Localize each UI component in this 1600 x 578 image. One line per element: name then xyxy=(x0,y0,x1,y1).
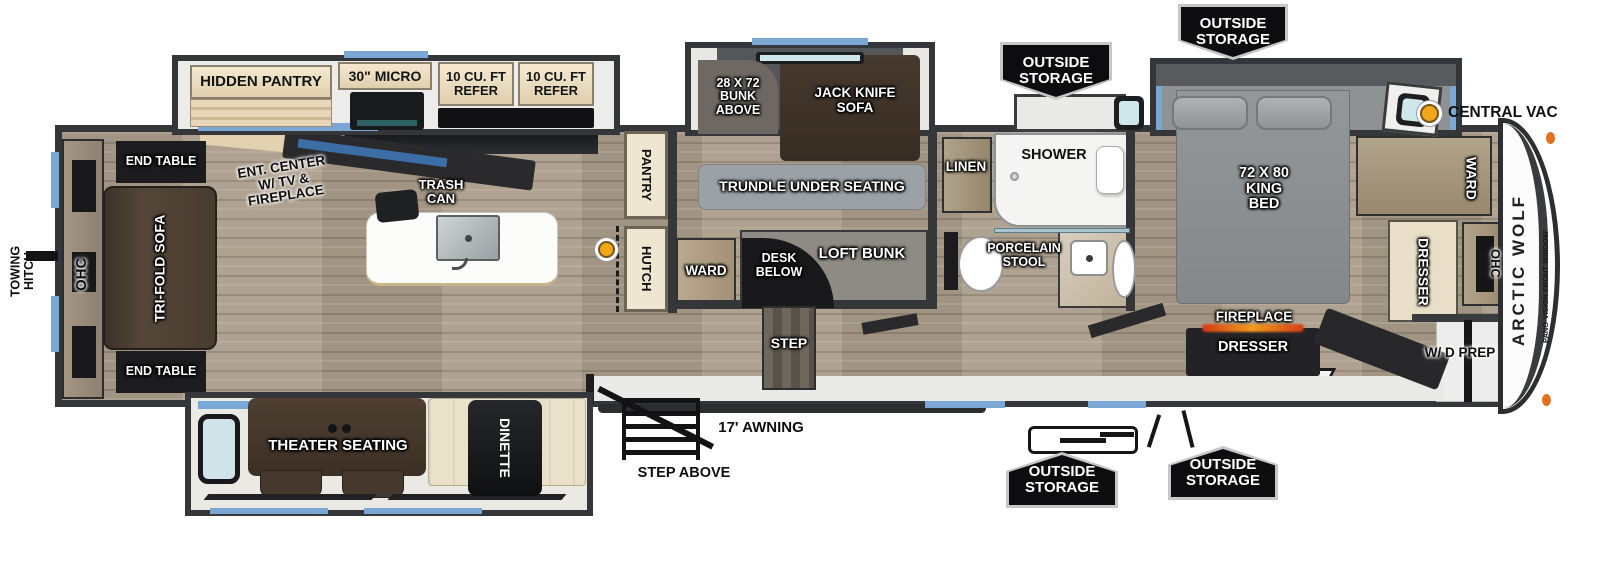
rear-cabinet-insert xyxy=(72,160,96,212)
pillow xyxy=(1256,96,1332,130)
outside-storage-label: OUTSIDE STORAGE xyxy=(1186,457,1260,490)
towing-hitch-label: TOWING HITCH xyxy=(4,226,42,316)
pantry-cabinet: PANTRY xyxy=(624,131,668,219)
outside-storage-badge: OUTSIDE STORAGE xyxy=(1168,446,1278,500)
trundle-label: TRUNDLE UNDER SEATING xyxy=(719,179,905,194)
exterior-storage-wedge xyxy=(1014,94,1126,132)
pillow xyxy=(1172,96,1248,130)
brand-logo: ARCTIC WOLF xyxy=(1506,172,1532,368)
end-table-label: END TABLE xyxy=(126,155,197,169)
sink-drain xyxy=(465,235,472,242)
step-tread xyxy=(622,424,700,429)
bunkroom-wardrobe: WARD xyxy=(676,238,736,304)
fireplace-label: FIREPLACE xyxy=(1198,310,1310,328)
central-vac-icon xyxy=(1420,104,1439,123)
bunkroom-wardrobe-label: WARD xyxy=(685,264,726,279)
rear-cabinet-insert xyxy=(72,326,96,378)
central-vac-outlet xyxy=(598,241,615,258)
door-mark xyxy=(1181,410,1194,448)
loft-bunk-label: LOFT BUNK xyxy=(802,246,922,268)
step-tread xyxy=(622,450,700,455)
linen-label: LINEN xyxy=(934,160,998,180)
storage-hatch xyxy=(1028,426,1138,454)
jack-knife-sofa-label: JACK KNIFE SOFA xyxy=(800,86,910,126)
cupholder xyxy=(328,424,337,433)
step-above-label: STEP ABOVE xyxy=(628,466,740,484)
range-stove xyxy=(350,92,424,130)
door-mark xyxy=(1100,432,1134,437)
bedroom-dresser-label: DRESSER xyxy=(1410,226,1436,318)
microwave: 30" MICRO xyxy=(338,62,432,90)
window-strip xyxy=(344,51,428,58)
bunk-above: 28 X 72 BUNK ABOVE xyxy=(698,60,778,134)
hutch-label: HUTCH xyxy=(639,246,653,292)
desk-label: DESK BELOW xyxy=(748,252,810,286)
window-strip xyxy=(1156,86,1162,130)
window-strip xyxy=(752,38,868,45)
window-sill xyxy=(203,494,376,500)
shower-glass xyxy=(994,228,1130,233)
pano-vision-front-window-label: PANO-VISION FRONT WINDOW xyxy=(1540,200,1551,375)
window-strip xyxy=(364,508,482,514)
king-bed-label: 72 X 80 KING BED xyxy=(1216,166,1312,222)
cupholder xyxy=(342,424,351,433)
trundle: TRUNDLE UNDER SEATING xyxy=(698,164,926,210)
central-vac-label: CENTRAL VAC xyxy=(1448,104,1560,122)
end-table-top: END TABLE xyxy=(116,141,206,183)
theater-seating-label: THEATER SEATING xyxy=(252,438,424,458)
refrigerator-1: 10 CU. FT REFER xyxy=(438,62,514,106)
hatch-handle xyxy=(1060,438,1106,443)
step-tread xyxy=(622,411,700,416)
shower-label: SHOWER xyxy=(1004,148,1104,166)
rear-ohc-label: OHC xyxy=(62,240,102,308)
stove-grate xyxy=(357,120,417,126)
door-mark xyxy=(1147,414,1161,448)
island-sink xyxy=(436,215,500,261)
refrigerator-2: 10 CU. FT REFER xyxy=(518,62,594,106)
headboard xyxy=(1156,64,1456,86)
step-rail xyxy=(696,398,700,460)
window-strip xyxy=(210,508,328,514)
marker-light-top xyxy=(1546,132,1555,144)
rv-floorplan: ARCTIC WOLF PANO-VISION FRONT WINDOW TOW… xyxy=(0,0,1600,578)
wall-segment xyxy=(928,131,937,309)
bunk-window-glass xyxy=(760,55,860,61)
outside-storage-label: OUTSIDE STORAGE xyxy=(1025,464,1099,497)
marker-light-bottom xyxy=(1542,394,1551,406)
side-window-glass xyxy=(1119,101,1139,125)
awning-label: 17' AWNING xyxy=(702,420,820,438)
refrigerator-fronts xyxy=(438,108,594,128)
outside-storage-label: OUTSIDE STORAGE xyxy=(1019,55,1093,88)
outside-storage-badge: OUTSIDE STORAGE xyxy=(1178,4,1288,60)
outside-storage-label: OUTSIDE STORAGE xyxy=(1196,16,1270,49)
bedroom-wardrobe-label: WARD xyxy=(1458,146,1484,210)
outside-storage-badge: OUTSIDE STORAGE xyxy=(1000,42,1112,100)
window-strip xyxy=(51,152,59,208)
front-dresser-label: DRESSER xyxy=(1200,340,1306,360)
end-table-bottom: END TABLE xyxy=(116,351,206,393)
window-strip xyxy=(51,296,59,352)
tri-fold-sofa-label: TRI-FOLD SOFA xyxy=(140,198,180,338)
window-strip xyxy=(1088,401,1146,408)
vanity-faucet xyxy=(1086,255,1093,262)
bunk-window xyxy=(756,52,864,64)
hutch-dashed-edge xyxy=(616,226,619,312)
vanity-sink xyxy=(1070,240,1108,276)
side-window xyxy=(1114,96,1144,130)
bedroom-ohc-label: OHC xyxy=(1484,234,1506,292)
step-rail xyxy=(622,398,626,460)
bathroom-door xyxy=(1112,240,1136,298)
shower-drain xyxy=(1010,172,1019,181)
porcelain-stool-label: PORCELAIN STOOL xyxy=(982,242,1066,276)
wd-prep-label: W/ D PREP xyxy=(1408,346,1512,364)
hutch-cabinet: HUTCH xyxy=(624,226,668,312)
window-strip xyxy=(925,401,1005,408)
dinette-table: DINETTE xyxy=(468,400,542,496)
hidden-pantry: HIDDEN PANTRY xyxy=(190,65,332,99)
dinette-label: DINETTE xyxy=(497,418,513,478)
entry-walkway xyxy=(592,376,1444,401)
step-label: STEP xyxy=(762,336,816,356)
hidden-pantry-shelves xyxy=(190,99,332,127)
trash-can-label: TRASH CAN xyxy=(408,178,474,212)
toilet-tank xyxy=(944,232,958,290)
side-window xyxy=(198,414,240,484)
outside-storage-badge: OUTSIDE STORAGE xyxy=(1006,452,1118,508)
end-table-label: END TABLE xyxy=(126,365,197,379)
pantry-label: PANTRY xyxy=(639,149,653,201)
